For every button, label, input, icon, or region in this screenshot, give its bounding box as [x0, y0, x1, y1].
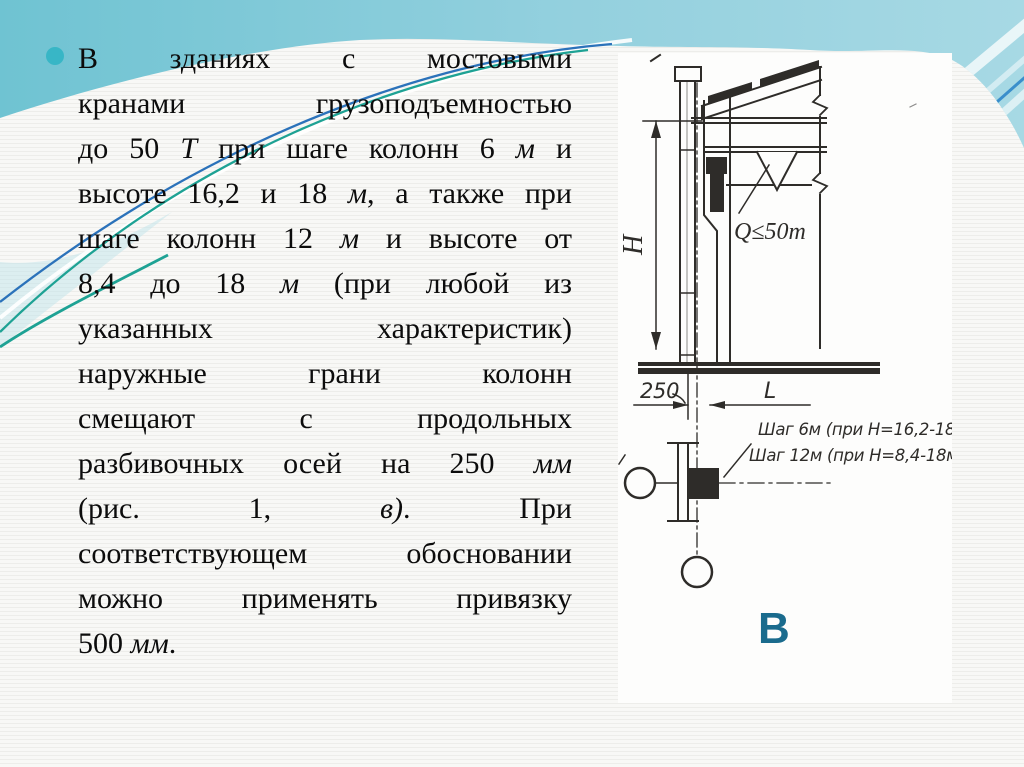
bullet-icon	[46, 47, 64, 65]
offset-dimension-label: 250	[640, 379, 679, 403]
crane-capacity-label: Q≤50т	[734, 219, 806, 245]
text-line: можно применять привязку	[78, 576, 572, 621]
text-line: В зданиях с мостовыми	[78, 36, 572, 81]
column-step-note-line2: Шаг 12м (при Н=8,4-18м)	[749, 446, 952, 465]
text-line: соответствующем обосновании	[78, 531, 572, 576]
text-line: шаге колонн 12 м и высоте от	[78, 216, 572, 261]
text-line: разбивочных осей на 250 мм	[78, 441, 572, 486]
text-line: (рис. 1, в). При	[78, 486, 572, 531]
column-step-note-line1: Шаг 6м (при Н=16,2-18м)	[758, 420, 952, 439]
text-line: указанных характеристик)	[78, 306, 572, 351]
height-dimension-label: H	[618, 233, 649, 256]
text-line: кранами грузоподъемностью	[78, 81, 572, 126]
text-line: 500 мм.	[78, 621, 572, 666]
text-line: 8,4 до 18 м (при любой из	[78, 261, 572, 306]
text-line: высоте 16,2 и 18 м, а также при	[78, 171, 572, 216]
span-dimension-label: L	[764, 379, 776, 404]
text-line: до 50 Т при шаге колонн 6 м и	[78, 126, 572, 171]
text-line: смещают с продольных	[78, 396, 572, 441]
text-line: наружные грани колонн	[78, 351, 572, 396]
bullet-paragraph: В зданиях с мостовымикранами грузоподъем…	[78, 36, 572, 666]
figure-variant-label: В	[758, 607, 790, 651]
slide: H Q≤50т 250 L Шаг 6м (при Н=16,2-18м) Ша…	[0, 0, 1024, 767]
